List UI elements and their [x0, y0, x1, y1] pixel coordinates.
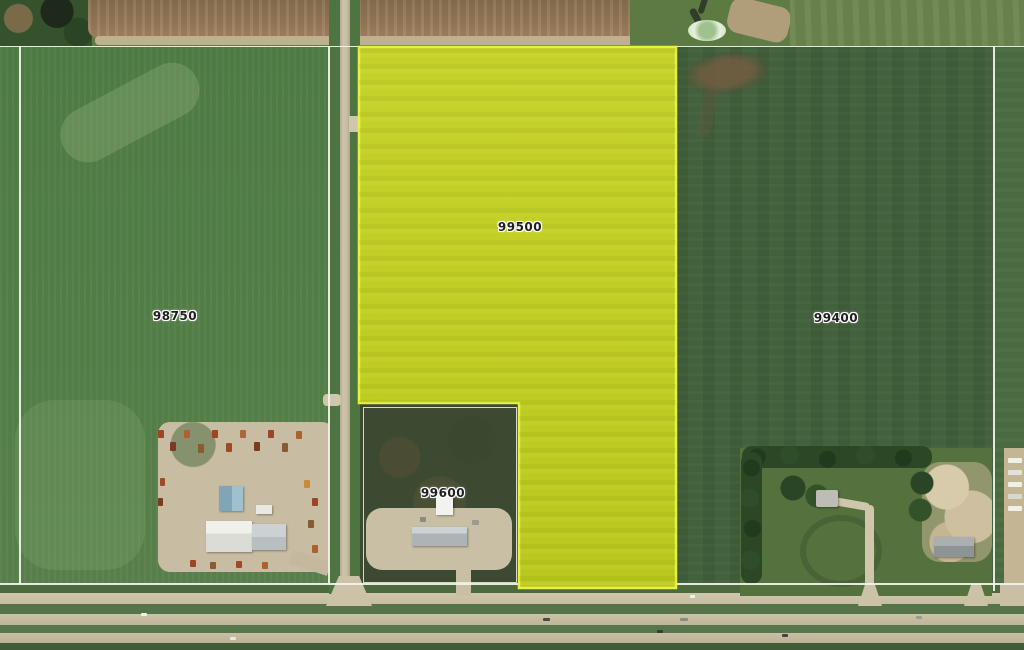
parcel-label-99400[interactable]: 99400	[814, 311, 858, 325]
aerial-parcel-map: 98750 99500 99400 99600	[0, 0, 1024, 650]
parcel-label-99600[interactable]: 99600	[421, 486, 465, 500]
parcel-label-98750[interactable]: 98750	[153, 309, 197, 323]
parcel-label-99500[interactable]: 99500	[498, 220, 542, 234]
parcel-99500-highlight[interactable]	[0, 0, 1024, 650]
parcel-99500-polygon[interactable]	[359, 47, 676, 588]
